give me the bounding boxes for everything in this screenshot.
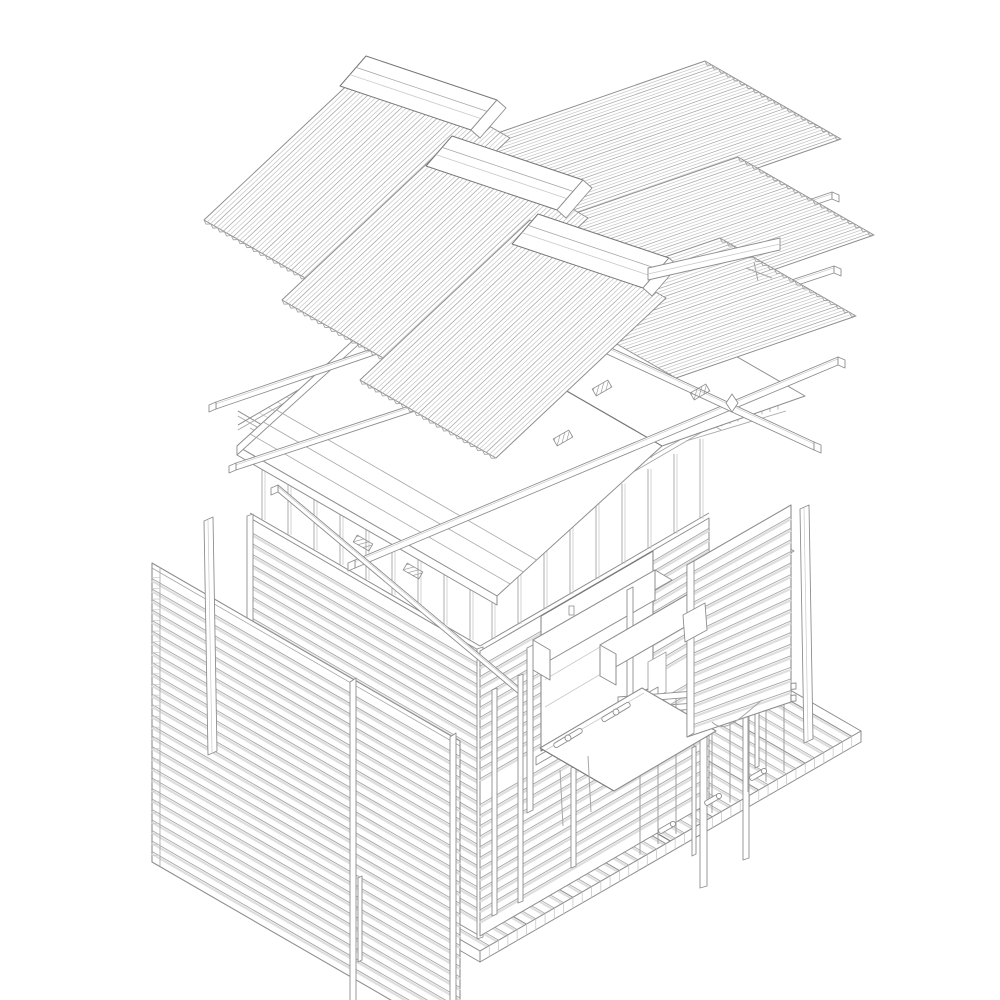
exploded-foreground-panels [358,876,362,962]
exploded-foreground-panels [571,766,576,868]
battens-and-braces [834,266,841,276]
exploded-foreground-panels [518,674,523,903]
exploded-foreground-panels [492,688,497,916]
exploded-foreground-panels [527,645,533,813]
battens-and-braces [403,563,423,579]
porch-railing [692,746,696,856]
battens-and-braces [353,535,373,551]
drawing-canvas [0,0,1000,1000]
battens-and-braces [209,402,216,412]
battens-and-braces [832,192,839,202]
battens-and-braces [353,535,373,551]
battens-and-braces [229,463,236,473]
exploded-axonometric-figure [0,0,1000,1000]
battens-and-braces [348,560,355,571]
battens-and-braces [271,485,278,495]
battens-and-braces [838,357,845,368]
exploded-foreground-panels [687,561,694,737]
serving-window [569,606,574,615]
exploded-foreground-panels [350,678,356,1000]
battens-and-braces [403,563,423,579]
battens-and-braces [814,442,821,453]
exploded-foreground-panels [450,733,456,1000]
